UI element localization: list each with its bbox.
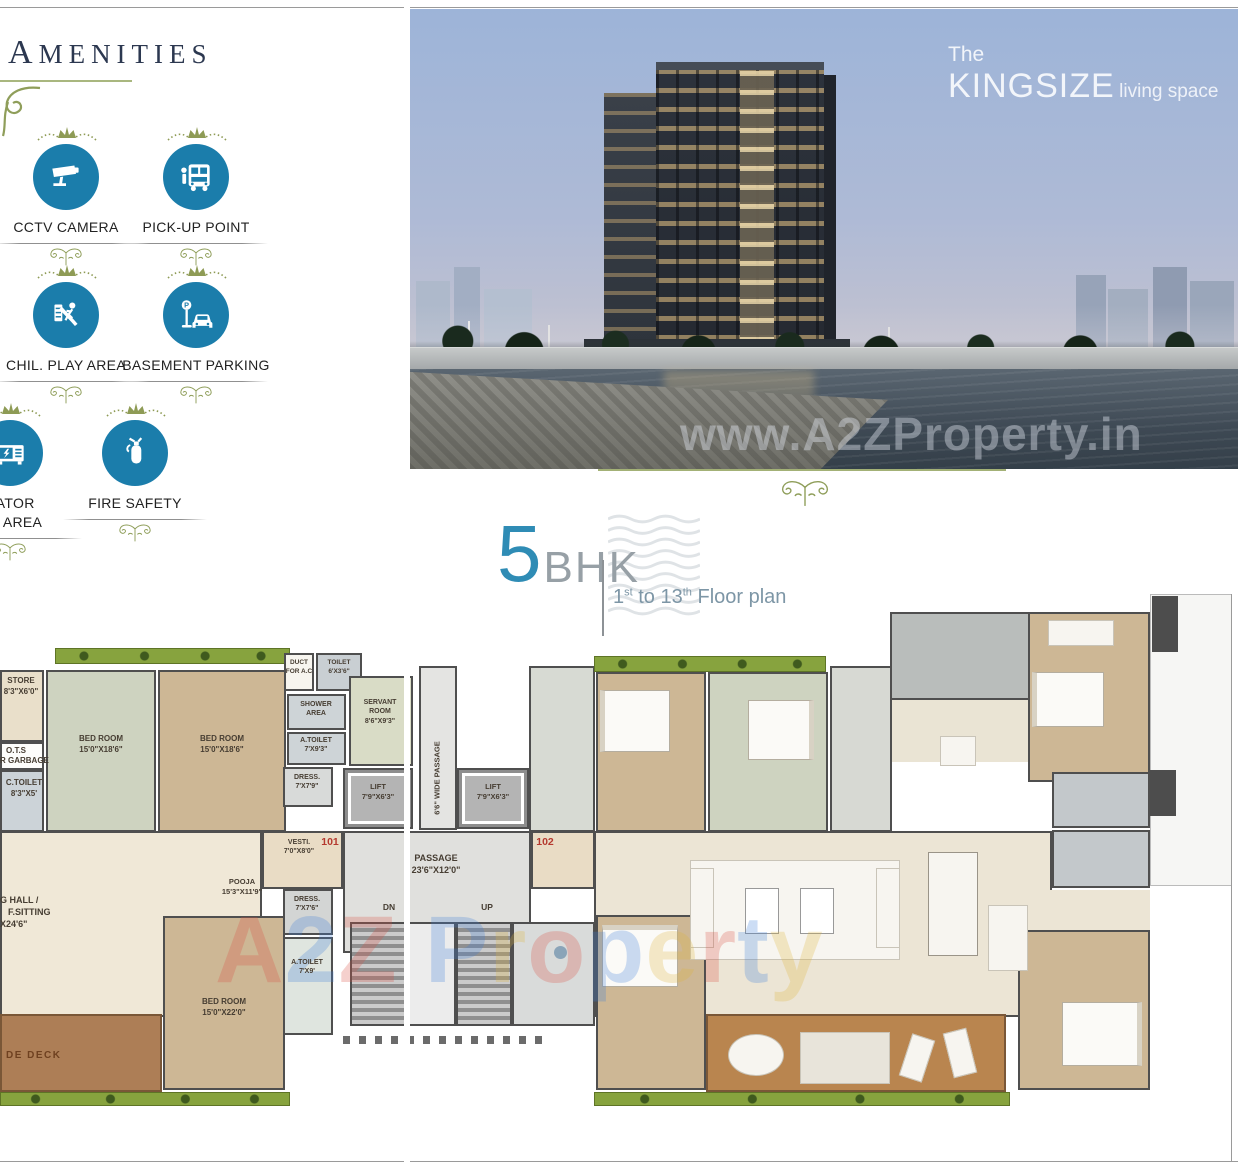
bed bbox=[748, 700, 814, 760]
amenities-title: AMENITIES bbox=[8, 34, 213, 72]
label-garbage: R GARBAGE bbox=[0, 756, 49, 767]
amenity-label: RATORON AREA bbox=[0, 494, 42, 532]
flourish-icon bbox=[115, 521, 155, 543]
room-r-corridor bbox=[830, 666, 892, 832]
label-attached-toilet-1: A.TOILET7'X9'3" bbox=[300, 736, 332, 755]
dining-table bbox=[928, 852, 978, 956]
fire-extinguisher-icon bbox=[114, 432, 156, 474]
parking-icon: P bbox=[175, 294, 217, 336]
cctv-camera-icon bbox=[45, 156, 87, 198]
label-deck: DE DECK bbox=[6, 1049, 62, 1063]
crown-icon bbox=[34, 262, 98, 280]
generator-icon bbox=[0, 432, 31, 474]
crown-icon bbox=[34, 124, 98, 142]
deck-rug bbox=[800, 1032, 890, 1084]
garden-strip-right bbox=[594, 1092, 1010, 1106]
bhk-suffix: BHK bbox=[544, 548, 640, 588]
garden-strip-left bbox=[0, 1092, 290, 1106]
label-pooja: POOJA15'3"X11'9" bbox=[222, 877, 262, 897]
tower-roof bbox=[656, 62, 824, 70]
threshold-marks bbox=[343, 1036, 543, 1044]
crown-icon bbox=[164, 124, 228, 142]
corner-sofa bbox=[988, 905, 1028, 971]
label-store: STORE8'3"X6'0" bbox=[4, 676, 39, 698]
tagline-the: The bbox=[948, 43, 1218, 67]
amenity-label: CCTV CAMERA bbox=[13, 218, 118, 237]
building-render-photo: www.A2ZProperty.in The KINGSIZE living s… bbox=[408, 9, 1238, 469]
label-bedroom-2: BED ROOM15'0"X18'6" bbox=[200, 734, 244, 756]
label-duct: DUCTFOR A.C bbox=[286, 659, 312, 677]
bed bbox=[1062, 1002, 1142, 1066]
crown-icon bbox=[164, 262, 228, 280]
crown-icon bbox=[103, 400, 167, 418]
bed bbox=[600, 690, 670, 752]
divider-flourish-icon bbox=[776, 471, 834, 513]
title-divider bbox=[602, 560, 604, 636]
photo-watermark: www.A2ZProperty.in bbox=[680, 407, 1143, 461]
hero-tagline: The KINGSIZE living space bbox=[948, 43, 1218, 106]
balcony-strip-right bbox=[594, 656, 826, 672]
label-lift-1: LIFT7'9"X6'3" bbox=[362, 782, 394, 802]
amenities-underline bbox=[0, 80, 132, 82]
brochure-page: AMENITIES CCTV CAMERA PICK-UP POINT bbox=[0, 0, 1238, 1172]
amenity-label: PICK-UP POINT bbox=[142, 218, 249, 237]
kitchen-counter bbox=[890, 612, 1040, 700]
plan-title: 5 BHK bbox=[497, 520, 640, 588]
svg-text:P: P bbox=[184, 301, 189, 310]
plan-right-border bbox=[1231, 594, 1232, 1162]
wall-frame bbox=[1152, 596, 1178, 652]
label-dress-1: DRESS.7'X7'9" bbox=[294, 773, 320, 792]
bed bbox=[1032, 672, 1104, 727]
amenity-fire-safety: FIRE SAFETY bbox=[45, 400, 225, 543]
balcony-strip bbox=[55, 648, 290, 664]
tagline-rest: living space bbox=[1119, 81, 1218, 102]
round-sofa bbox=[728, 1034, 784, 1076]
bhk-number: 5 bbox=[497, 520, 542, 588]
label-dn: DN bbox=[383, 902, 395, 913]
label-dress-2: DRESS.7'X7'6" bbox=[294, 895, 320, 914]
label-up: UP bbox=[481, 902, 493, 913]
top-border bbox=[0, 7, 1238, 8]
flourish-icon bbox=[0, 540, 30, 562]
label-bedroom-3: BED ROOM15'0"X22'0" bbox=[202, 997, 246, 1019]
unit-number-102: 102 bbox=[536, 836, 554, 848]
unit-number-101: 101 bbox=[321, 836, 339, 848]
entry-102-corridor bbox=[529, 666, 595, 832]
sofa bbox=[1048, 620, 1114, 646]
label-common-toilet: C.TOILET8'3"X5' bbox=[6, 778, 42, 800]
page-gutter bbox=[404, 0, 410, 1172]
label-vesti: VESTI.7'0"X8'0" bbox=[284, 838, 314, 857]
bottom-border bbox=[0, 1161, 1238, 1162]
playground-icon bbox=[45, 294, 87, 336]
amenity-label: BASEMENT PARKING bbox=[122, 356, 269, 375]
side-sofa bbox=[876, 868, 900, 948]
amenity-label: FIRE SAFETY bbox=[88, 494, 182, 513]
room-r-bath-2 bbox=[1052, 830, 1150, 888]
tagline-brand: KINGSIZE bbox=[948, 67, 1115, 105]
bus-icon bbox=[175, 156, 217, 198]
plan-watermark: A2Z Property bbox=[215, 903, 824, 998]
label-lift-2: LIFT7'9"X6'3" bbox=[477, 782, 509, 802]
room-r-bath-1 bbox=[1052, 772, 1150, 828]
crown-icon bbox=[0, 400, 42, 418]
floor-range: 1st to 13th Floor plan bbox=[613, 586, 786, 609]
label-servant: SERVANTROOM8'6"X9'3" bbox=[364, 698, 397, 726]
label-attached-toilet-2: A.TOILET7'X9' bbox=[291, 958, 323, 977]
label-wide-passage: 6'6" WIDE PASSAGE bbox=[433, 741, 442, 815]
label-bedroom-1: BED ROOM15'0"X18'6" bbox=[79, 734, 123, 756]
label-toilet: TOILET6'X3'6" bbox=[328, 659, 351, 677]
amenity-pickup-point: PICK-UP POINT bbox=[106, 124, 286, 267]
label-hall: G HALL /F.SITTINGX24'6" bbox=[0, 894, 51, 930]
label-passage: PASSAGE23'6"X12'0" bbox=[412, 852, 461, 876]
label-shower: SHOWERAREA bbox=[300, 700, 332, 719]
kitchen-island bbox=[940, 736, 976, 766]
amenity-basement-parking: P BASEMENT PARKING bbox=[106, 262, 286, 405]
wall-frame bbox=[1150, 770, 1176, 816]
